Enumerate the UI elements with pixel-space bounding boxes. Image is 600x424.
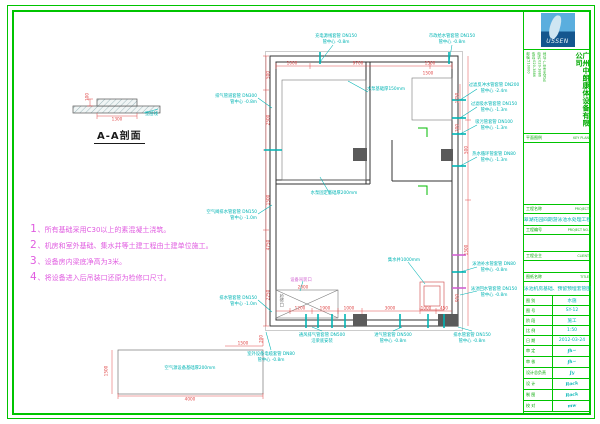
logo-figure (547, 14, 563, 40)
signature: fh~ (553, 346, 591, 356)
company-name: 广州中朗康体设备有限公司 (575, 52, 589, 131)
title-label-en: TITLE (580, 275, 589, 279)
pair-key: 图 号 (524, 306, 553, 315)
keyplan-row: 平面图例 KEY PLAN (524, 134, 591, 143)
section-title: A-A剖面 (94, 127, 145, 144)
pipe-annotation: 充电源线套管 DN150管中心 -0.8m (315, 34, 357, 45)
title-label: 图纸名称 (526, 274, 542, 280)
dimension-label: 1300 (112, 117, 123, 122)
pipe-annotation: 通风排气管套管 DN500沿梁底安装 (299, 333, 345, 344)
client-box (524, 261, 591, 273)
logo-text: USSEN (541, 38, 575, 45)
pair-key: 图 别 (524, 296, 553, 305)
drawing-sheet: 充电源线套管 DN150管中心 -0.8m市政给水管套管 DN150管中心 -0… (0, 0, 600, 424)
signature-key: 设计总负责 (524, 368, 553, 378)
dimension-label: 1000 (344, 306, 355, 311)
dimension-label: 1200 (295, 306, 306, 311)
contact-line: 电话:020-3886 (537, 52, 541, 131)
title-row: 图纸名称 TITLE (524, 273, 591, 282)
client-row: 工程业主 CLIENT (524, 252, 591, 261)
dimension-label: 500 (464, 146, 469, 154)
pair-key: 比 例 (524, 326, 553, 335)
dimension-label: 2000 (298, 285, 309, 290)
project-row: 工程名称 PROJECT (524, 205, 591, 214)
pipe-annotation: 垫层线 (145, 112, 158, 118)
pipe-annotation: 泳池补水管套管 DN80管中心 -0.8m (472, 262, 515, 273)
pair-value: 2012-03-24 (553, 338, 591, 343)
projectno-box (524, 235, 591, 252)
project-name: 翠湖花园四期游泳池水处理工程 (524, 214, 591, 226)
signature-key: 审 核 (524, 357, 553, 367)
note-text: 、将设备进入后吊装口还原为检修口尺寸。 (38, 273, 171, 283)
signature-row: 审 定 fh~ (524, 346, 591, 357)
signature-key: 校 对 (524, 401, 553, 411)
dimension-label: 4000 (185, 397, 196, 402)
signature: Jy (553, 368, 591, 378)
logo-mark-icon: USSEN (541, 13, 575, 47)
signature-row: 制 图 Rock (524, 390, 591, 401)
note-item: 4 、将设备进入后吊装口还原为检修口尺寸。 (30, 270, 213, 283)
signature-row: 设 计 Rock (524, 379, 591, 390)
dimension-label: 500 (266, 71, 271, 79)
dimension-label: 2250 (266, 290, 271, 301)
pipe-annotation: 设备吊装口 (290, 278, 311, 284)
pair-value: SY-12 (553, 308, 591, 313)
dimension-label: 100 (85, 93, 90, 101)
pipe-annotation: 排水管套管 DN150管中心 -0.8m (453, 333, 491, 344)
signature: fh~ (553, 357, 591, 367)
pair-row: 图 号 SY-12 (524, 306, 591, 316)
pair-row: 图 别 水施 (524, 296, 591, 306)
dimension-label: 200 (259, 335, 264, 343)
note-number: 1 (30, 222, 37, 235)
pair-row: 阶 段 施工 (524, 316, 591, 326)
keyplan-label: 平面图例 (526, 135, 542, 141)
dimension-label: 1750 (455, 93, 460, 104)
signature-key: 制 图 (524, 390, 553, 400)
signature-row: 审 核 fh~ (524, 357, 591, 368)
project-label-en: PROJECT (575, 207, 589, 211)
note-text: 、所有基础采用C30以上的素混凝土浇筑。 (38, 225, 171, 235)
project-label: 工程名称 (526, 206, 542, 212)
dimension-label: 1500 (423, 71, 434, 76)
pair-value: 施工 (553, 318, 591, 324)
client-label-en: CLIENT (577, 254, 589, 258)
note-text: 、机房和室外基础、集水井等土建工程由土建单位施工。 (38, 241, 213, 251)
dimension-label: 2500 (266, 115, 271, 126)
pipe-annotation: 排气管道套管 DN300管中心 -0.8m (215, 94, 257, 105)
signature: mw (553, 401, 591, 411)
dimension-label: 450 (440, 306, 448, 311)
signature-row: 校 对 mw (524, 401, 591, 412)
note-number: 3 (30, 254, 37, 267)
pair-value: 1:50 (553, 328, 591, 333)
note-text: 、设备房内梁底净高为3米。 (38, 257, 126, 267)
client-label: 工程业主 (526, 253, 542, 259)
dimension-label: 9700 (353, 61, 364, 66)
title-block: USSEN 邮编:510000 传真:020-3886 电话:020-3886 … (523, 10, 591, 415)
company-section: 邮编:510000 传真:020-3886 电话:020-3886 地址:广州市… (524, 50, 591, 134)
note-item: 2 、机房和室外基础、集水井等土建工程由土建单位施工。 (30, 238, 213, 251)
dimension-label: 1500 (425, 61, 436, 66)
keyplan-box (524, 143, 591, 205)
pipe-annotation: 进气管套管 DN500管中心 -0.8m (374, 333, 412, 344)
dimension-label: 1500 (266, 195, 271, 206)
signature-key: 设 计 (524, 379, 553, 389)
pipe-annotation: 市政给水管套管 DN150管中心 -0.8m (429, 34, 475, 45)
pair-value: 水施 (553, 298, 591, 304)
dimension-label: 1500 (238, 341, 249, 346)
dimension-label: 4750 (266, 240, 271, 251)
pipe-annotation: 集水井1000mm (388, 258, 420, 264)
dimension-label: 200 (455, 124, 460, 132)
dimension-label: 1500 (104, 366, 109, 377)
pipe-annotation: 空气源设备基础厚200mm (165, 366, 216, 372)
pipe-annotation: 水泵固定基础厚200mm (311, 191, 358, 197)
pipe-annotation: 室外设备电缆套管 DN80管中心 -0.8m (247, 352, 295, 363)
company-logo: USSEN (524, 10, 591, 50)
drawing-title: 泳池机房基础、预留预埋套管图 (524, 282, 591, 296)
note-number: 2 (30, 238, 37, 251)
dimension-label: 1900 (320, 306, 331, 311)
pipe-annotation: 热水循环管套管 DN80管中心 -1.3m (472, 152, 515, 163)
construction-notes: 1 、所有基础采用C30以上的素混凝土浇筑。 2 、机房和室外基础、集水井等土建… (30, 222, 213, 286)
signature: Rock (553, 379, 591, 389)
projectno-label: 工程编号 (526, 227, 542, 233)
signature-row: 设计总负责 Jy (524, 368, 591, 379)
projectno-label-en: PROJECT NO. (568, 228, 589, 232)
pipe-annotation: 水泵基础厚150mm (367, 87, 405, 93)
pipe-annotation: 过滤反冲水管套管 DN200管中心 -2.4m (469, 83, 519, 94)
note-item: 1 、所有基础采用C30以上的素混凝土浇筑。 (30, 222, 213, 235)
pair-row: 日 期 2012-03-24 (524, 336, 591, 346)
contact-line: 地址:广州市天河区 (543, 52, 547, 131)
pipe-annotation: 泳池回水管套管 DN150管中心 -0.8m (471, 287, 517, 298)
pipe-annotation: 排水管套管 DN150管中心 -1.0m (219, 296, 257, 307)
dimension-label: 3000 (385, 306, 396, 311)
pair-key: 阶 段 (524, 316, 553, 325)
signature-key: 审 定 (524, 346, 553, 356)
pipe-annotation: 检修口 (278, 294, 284, 307)
keyplan-label-en: KEY PLAN (573, 136, 589, 140)
pipe-annotation: 吸污管套管 DN100管中心 -1.3m (475, 120, 513, 131)
contact-line: 邮编:510000 (526, 52, 530, 131)
pair-row: 比 例 1:50 (524, 326, 591, 336)
pipe-annotation: 空气阀排水管套管 DN150管中心 -1.0m (207, 210, 257, 221)
note-item: 3 、设备房内梁底净高为3米。 (30, 254, 213, 267)
dimension-label: 1000 (421, 306, 432, 311)
signature: Rock (553, 390, 591, 400)
note-number: 4 (30, 270, 37, 283)
dimension-label: 950 (455, 294, 460, 302)
company-contact: 邮编:510000 传真:020-3886 电话:020-3886 地址:广州市… (526, 52, 546, 131)
projectno-row: 工程编号 PROJECT NO. (524, 226, 591, 235)
dimension-label: 1000 (287, 61, 298, 66)
contact-line: 传真:020-3886 (532, 52, 536, 131)
pipe-annotation: 过滤吸水管套管 DN150管中心 -1.3m (471, 102, 517, 113)
pair-key: 日 期 (524, 336, 553, 345)
annotation-layer: 充电源线套管 DN150管中心 -0.8m市政给水管套管 DN150管中心 -0… (0, 0, 600, 424)
dimension-label: 1500 (464, 245, 469, 256)
